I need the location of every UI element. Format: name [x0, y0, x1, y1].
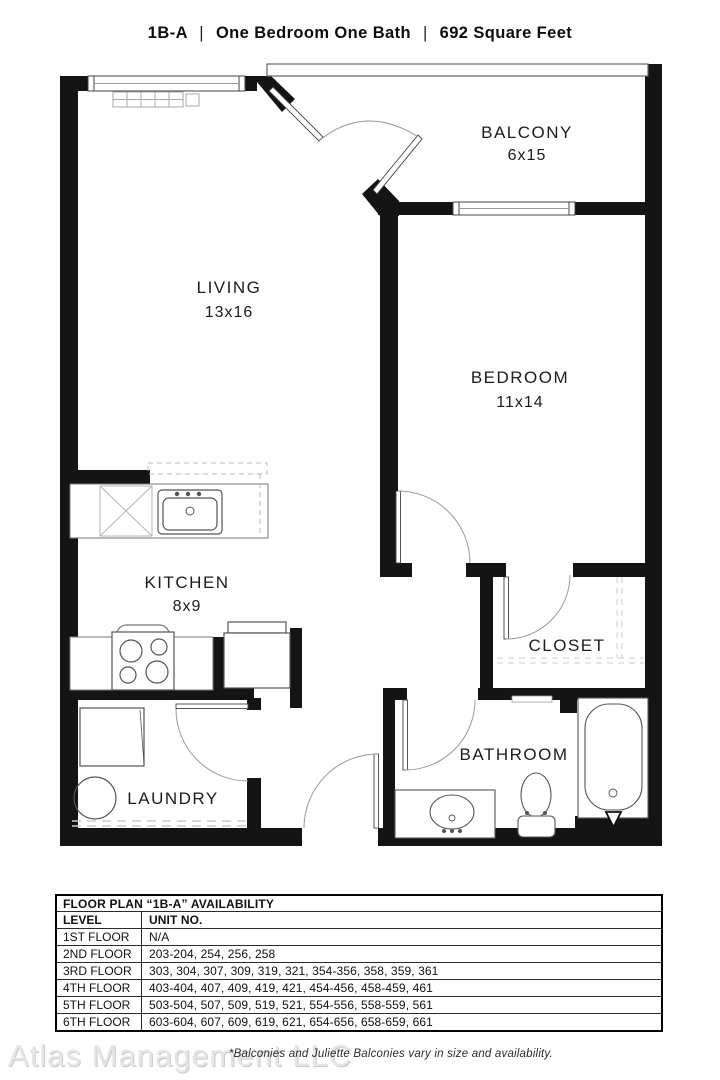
row-level: 1ST FLOOR	[57, 929, 142, 945]
row-level: 6TH FLOOR	[57, 1014, 142, 1030]
closet-door	[504, 575, 570, 639]
laundry-label: LAUNDRY	[127, 789, 218, 808]
balcony-dims: 6x15	[508, 147, 547, 164]
availability-header-row: FLOOR PLAN “1B-A” AVAILABILITY	[57, 896, 661, 911]
row-level: 2ND FLOOR	[57, 946, 142, 962]
washer-icon	[80, 708, 144, 766]
bedroom-window	[453, 202, 575, 215]
row-units: 203-204, 254, 256, 258	[142, 948, 275, 960]
table-row: 2ND FLOOR 203-204, 254, 256, 258	[57, 945, 661, 962]
walls	[60, 64, 662, 846]
row-units: 603-604, 607, 609, 619, 621, 654-656, 65…	[142, 1016, 433, 1028]
column-level: LEVEL	[57, 912, 142, 928]
vanity-sink-icon	[395, 790, 495, 838]
row-level: 3RD FLOOR	[57, 963, 142, 979]
bathtub-icon	[578, 698, 648, 827]
availability-table: FLOOR PLAN “1B-A” AVAILABILITY LEVEL UNI…	[55, 894, 663, 1032]
balcony-door	[269, 87, 422, 194]
laundry-door	[176, 704, 248, 781]
row-level: 4TH FLOOR	[57, 980, 142, 996]
living-window	[88, 76, 245, 91]
fridge-icon	[224, 622, 290, 688]
living-label: LIVING	[197, 278, 262, 297]
row-units: N/A	[142, 931, 169, 943]
table-row: 6TH FLOOR 603-604, 607, 609, 619, 621, 6…	[57, 1013, 661, 1030]
entry-door	[304, 754, 379, 828]
balcony-disclaimer: *Balconies and Juliette Balconies vary i…	[229, 1048, 553, 1060]
laundry-shelf	[72, 821, 246, 826]
bedroom-dims: 11x14	[496, 394, 543, 411]
row-units: 303, 304, 307, 309, 319, 321, 354-356, 3…	[142, 965, 438, 977]
living-dims: 13x16	[205, 304, 254, 321]
bathroom-label: BATHROOM	[460, 745, 569, 764]
bedroom-label: BEDROOM	[471, 368, 569, 387]
row-units: 403-404, 407, 409, 419, 421, 454-456, 45…	[142, 982, 433, 994]
row-level: 5TH FLOOR	[57, 997, 142, 1013]
table-row: 3RD FLOOR 303, 304, 307, 309, 319, 321, …	[57, 962, 661, 979]
heater-unit	[113, 92, 199, 107]
kitchen-label: KITCHEN	[144, 573, 229, 592]
balcony-railing	[267, 64, 648, 76]
column-units: UNIT NO.	[142, 914, 202, 926]
table-row: 5TH FLOOR 503-504, 507, 509, 519, 521, 5…	[57, 996, 661, 1013]
sink-icon	[158, 490, 222, 534]
closet-label: CLOSET	[528, 636, 605, 655]
balcony-label: BALCONY	[481, 123, 573, 142]
bath-niche	[512, 696, 552, 702]
row-units: 503-504, 507, 509, 519, 521, 554-556, 55…	[142, 999, 433, 1011]
bedroom-door	[396, 491, 470, 563]
availability-columns-row: LEVEL UNIT NO.	[57, 911, 661, 928]
stove-icon	[112, 625, 174, 690]
floor-plan: LIVING 13x16 BALCONY 6x15 BEDROOM 11x14 …	[0, 0, 720, 880]
table-row: 4TH FLOOR 403-404, 407, 409, 419, 421, 4…	[57, 979, 661, 996]
toilet-icon	[518, 773, 555, 837]
kitchen-dims: 8x9	[173, 598, 202, 615]
table-row: 1ST FLOOR N/A	[57, 928, 661, 945]
availability-title: FLOOR PLAN “1B-A” AVAILABILITY	[57, 898, 274, 910]
water-heater-icon	[74, 777, 116, 819]
